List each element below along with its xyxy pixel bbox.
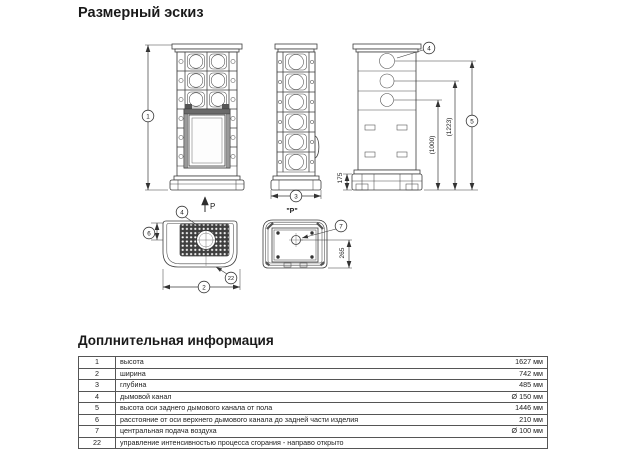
row-number: 5 [79, 403, 116, 415]
row-content-cell: управление интенсивностью процесса сгора… [116, 437, 548, 449]
row-value: 485 мм [513, 380, 543, 391]
row-content-cell: высота оси заднего дымового канала от по… [116, 403, 548, 415]
catalog-page: Размерный эскиз # [0, 0, 624, 460]
svg-text:7: 7 [339, 223, 343, 230]
table-row: 22управление интенсивностью процесса сго… [79, 437, 548, 449]
row-content-cell: дымовой каналØ 150 мм [116, 391, 548, 403]
row-label: высота [120, 357, 144, 368]
row-value: 1446 мм [509, 403, 543, 414]
row-label: центральная подача воздуха [120, 426, 217, 437]
table-row: 7центральная подача воздухаØ 100 мм [79, 426, 548, 438]
row-number: 7 [79, 426, 116, 438]
dim-ref-1223: (1223) [446, 118, 453, 137]
row-value: Ø 100 мм [506, 426, 543, 437]
callout-7: 7 [335, 220, 347, 232]
svg-text:4: 4 [427, 45, 431, 52]
row-content-cell: центральная подача воздухаØ 100 мм [116, 426, 548, 438]
svg-text:2: 2 [202, 284, 206, 291]
projection-view-label: "P" [286, 208, 297, 215]
dimensional-drawing: # [0, 0, 624, 330]
callout-4-top: 4 [176, 206, 188, 218]
info-section: Доплнительная информация 1высота1627 мм2… [78, 333, 550, 449]
dim-bottom-offset: 265 [339, 247, 346, 258]
row-content-cell: ширина742 мм [116, 368, 548, 380]
row-content-cell: глубина485 мм [116, 380, 548, 392]
svg-text:1: 1 [146, 113, 150, 120]
row-number: 3 [79, 380, 116, 392]
rear-view: 175 (1000) (1223) [337, 44, 478, 190]
row-label: управление интенсивностью процесса сгора… [120, 438, 344, 449]
callout-4-rear: 4 [423, 42, 435, 54]
row-number: 6 [79, 414, 116, 426]
dim-ref-1000: (1000) [429, 136, 436, 155]
info-table: 1высота1627 мм2ширина742 мм3глубина485 м… [78, 356, 548, 449]
row-value: 1627 мм [509, 357, 543, 368]
callout-2: 2 [198, 281, 210, 293]
row-number: 4 [79, 391, 116, 403]
info-table-body: 1высота1627 мм2ширина742 мм3глубина485 м… [79, 357, 548, 449]
table-row: 4дымовой каналØ 150 мм [79, 391, 548, 403]
info-title: Доплнительная информация [78, 333, 550, 348]
projection-arrow-label: P [210, 202, 215, 211]
table-row: 5высота оси заднего дымового канала от п… [79, 403, 548, 415]
front-view: P [145, 44, 244, 212]
row-value: 742 мм [513, 369, 543, 380]
row-label: ширина [120, 369, 146, 380]
callout-5: 5 [466, 115, 478, 127]
row-content-cell: расстояние от оси верхнего дымового кана… [116, 414, 548, 426]
dim-base-height: 175 [337, 172, 344, 183]
side-view [271, 44, 321, 199]
row-content-cell: высота1627 мм [116, 357, 548, 369]
svg-text:3: 3 [294, 193, 298, 200]
table-row: 3глубина485 мм [79, 380, 548, 392]
svg-text:6: 6 [147, 230, 151, 237]
row-label: дымовой канал [120, 392, 172, 403]
row-number: 22 [79, 437, 116, 449]
svg-text:22: 22 [228, 276, 234, 282]
row-value: Ø 150 мм [506, 392, 543, 403]
table-row: 1высота1627 мм [79, 357, 548, 369]
callout-3: 3 [290, 190, 302, 202]
bottom-plan-view: "P" 265 [263, 208, 352, 268]
row-label: глубина [120, 380, 146, 391]
row-number: 2 [79, 368, 116, 380]
svg-text:4: 4 [180, 209, 184, 216]
callout-1: 1 [142, 110, 154, 122]
row-number: 1 [79, 357, 116, 369]
table-row: 2ширина742 мм [79, 368, 548, 380]
svg-text:5: 5 [470, 118, 474, 125]
row-value: 210 мм [513, 415, 543, 426]
callout-6: 6 [143, 227, 155, 239]
row-label: высота оси заднего дымового канала от по… [120, 403, 272, 414]
table-row: 6расстояние от оси верхнего дымового кан… [79, 414, 548, 426]
callout-22: 22 [225, 272, 237, 284]
row-label: расстояние от оси верхнего дымового кана… [120, 415, 358, 426]
